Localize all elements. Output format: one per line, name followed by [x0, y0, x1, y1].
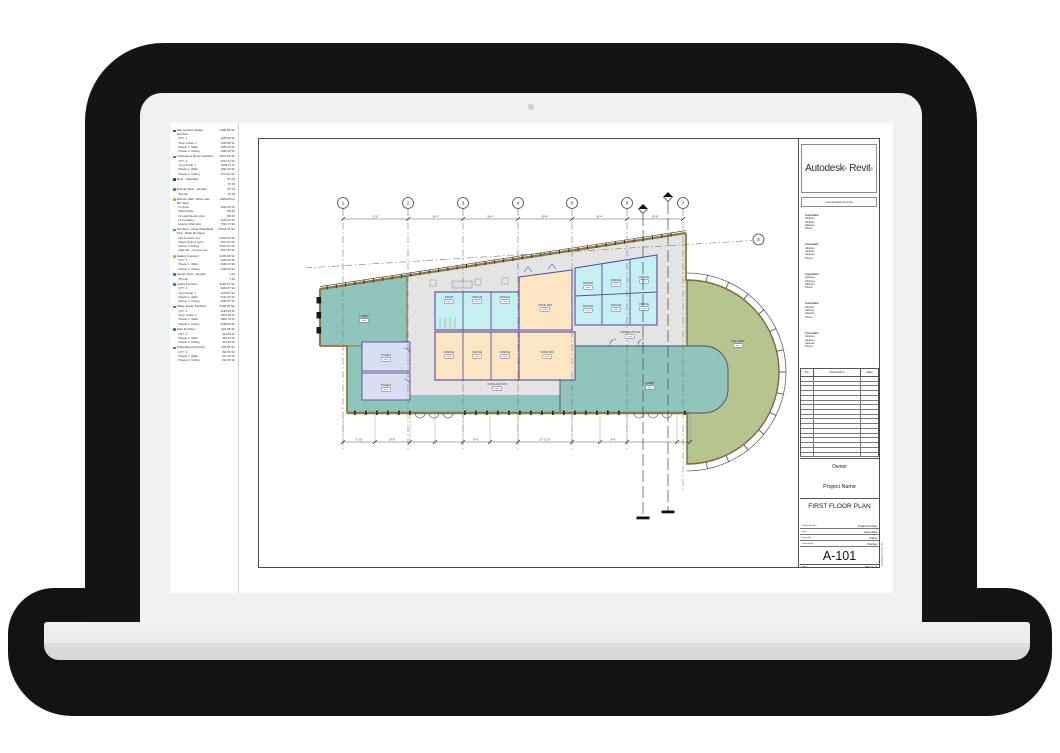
- sheet-number: A-101: [800, 547, 879, 564]
- print-stamp: 6/23/2015 2:57:21 PM: [881, 498, 889, 566]
- category-icon: [173, 198, 176, 201]
- schedule-row: 88 total1.00: [173, 277, 235, 281]
- category-icon: [173, 347, 176, 350]
- consultant-block: ConsultantAddressAddressAddressPhone: [805, 214, 875, 230]
- schedule-row: Plaster 2: Ceiling4188.08 SF: [173, 322, 235, 326]
- laptop-base: [44, 622, 1030, 660]
- autodesk-url: www.autodesk.com/revit: [801, 197, 877, 207]
- schedule-row: Plaster 2: Ceiling2072.52 SF: [173, 172, 235, 176]
- schedule-row: 88 total87.00: [173, 192, 235, 196]
- sheet-border: [258, 138, 880, 568]
- revision-row: [801, 453, 878, 458]
- revision-col-no: No.: [801, 369, 814, 376]
- revision-col-date: Date: [861, 369, 878, 376]
- category-icon: [173, 188, 176, 191]
- consultant-block: ConsultantAddressAddressAddressPhone: [805, 273, 875, 289]
- consultant-block: ConsultantAddressAddressAddressPhone: [805, 302, 875, 318]
- sheet-title: FIRST FLOOR PLAN: [800, 498, 879, 523]
- registered-mark-icon: ®: [871, 167, 873, 171]
- schedule-group-header: Furniture - Desk (Standard) Two - Work F…: [173, 228, 235, 235]
- schedule-sidebar: Site Lambert Space Function1286.68 SFQTY…: [173, 127, 235, 363]
- schedule-row: Plaster 2: Ceiling1286.68 SF: [173, 149, 235, 153]
- consultant-block: ConsultantAddressAddressAddressPhone: [805, 332, 875, 348]
- schedule-row: Matt Tab - console runs3817.80 SF: [173, 248, 235, 252]
- schedule-row: Plaster 2: Ceiling392.55 SF: [173, 358, 235, 362]
- registered-mark-icon: ®: [844, 167, 846, 171]
- schedule-row: Plaster 2: Ceiling404.08 SF: [173, 340, 235, 344]
- category-icon: [173, 178, 176, 181]
- category-icon: [173, 156, 176, 159]
- schedule-group-header: Site Lambert Space Function1286.68 SF: [173, 129, 235, 136]
- revision-table: No. Description Date: [800, 368, 879, 457]
- sheet-divider: [238, 123, 239, 593]
- titleblock-fields: Project Number Project Number Date Issue…: [800, 523, 879, 547]
- logo-word-revit: Revit: [849, 163, 870, 174]
- project-name-label: Project Name: [800, 484, 879, 490]
- logo-word-autodesk: Autodesk: [805, 163, 844, 174]
- scale-label: Scale: [802, 566, 807, 568]
- scale-value: 1/8" = 1'-0": [864, 566, 877, 569]
- schedule-row: Plaster 2: Ceiling3282.87 SF: [173, 299, 235, 303]
- consultant-blocks: ConsultantAddressAddressAddressPhoneCons…: [805, 214, 875, 361]
- revision-table-header: No. Description Date: [801, 369, 878, 377]
- consultant-block: ConsultantAddressAddressAddressPhone: [805, 243, 875, 259]
- schedule-row: Plaster 2: Ceiling2436.00 SF: [173, 267, 235, 271]
- category-icon: [173, 306, 176, 309]
- webcam-icon: [528, 104, 534, 110]
- schedule-row: 87.00: [173, 182, 235, 186]
- owner-box: Owner Project Name: [800, 458, 879, 498]
- scale-row: Scale 1/8" = 1'-0": [800, 564, 879, 570]
- category-icon: [173, 273, 176, 276]
- schedule-row: Exterior Wall paint7631.70 SF: [173, 222, 235, 226]
- revision-col-description: Description: [814, 369, 861, 376]
- autodesk-revit-logo: Autodesk® Revit®: [801, 144, 877, 193]
- owner-label: Owner: [800, 464, 879, 470]
- revision-table-rows: [801, 377, 878, 457]
- category-icon: [173, 130, 176, 133]
- category-icon: [173, 255, 176, 258]
- schedule-group-header: Exterior Wall - Brick over Mtl. Stud2480…: [173, 198, 235, 205]
- category-icon: [173, 328, 176, 331]
- category-icon: [173, 229, 176, 232]
- category-icon: [173, 283, 176, 286]
- page: { "sheet": { "logo_word1": "Autodesk", "…: [0, 0, 1060, 753]
